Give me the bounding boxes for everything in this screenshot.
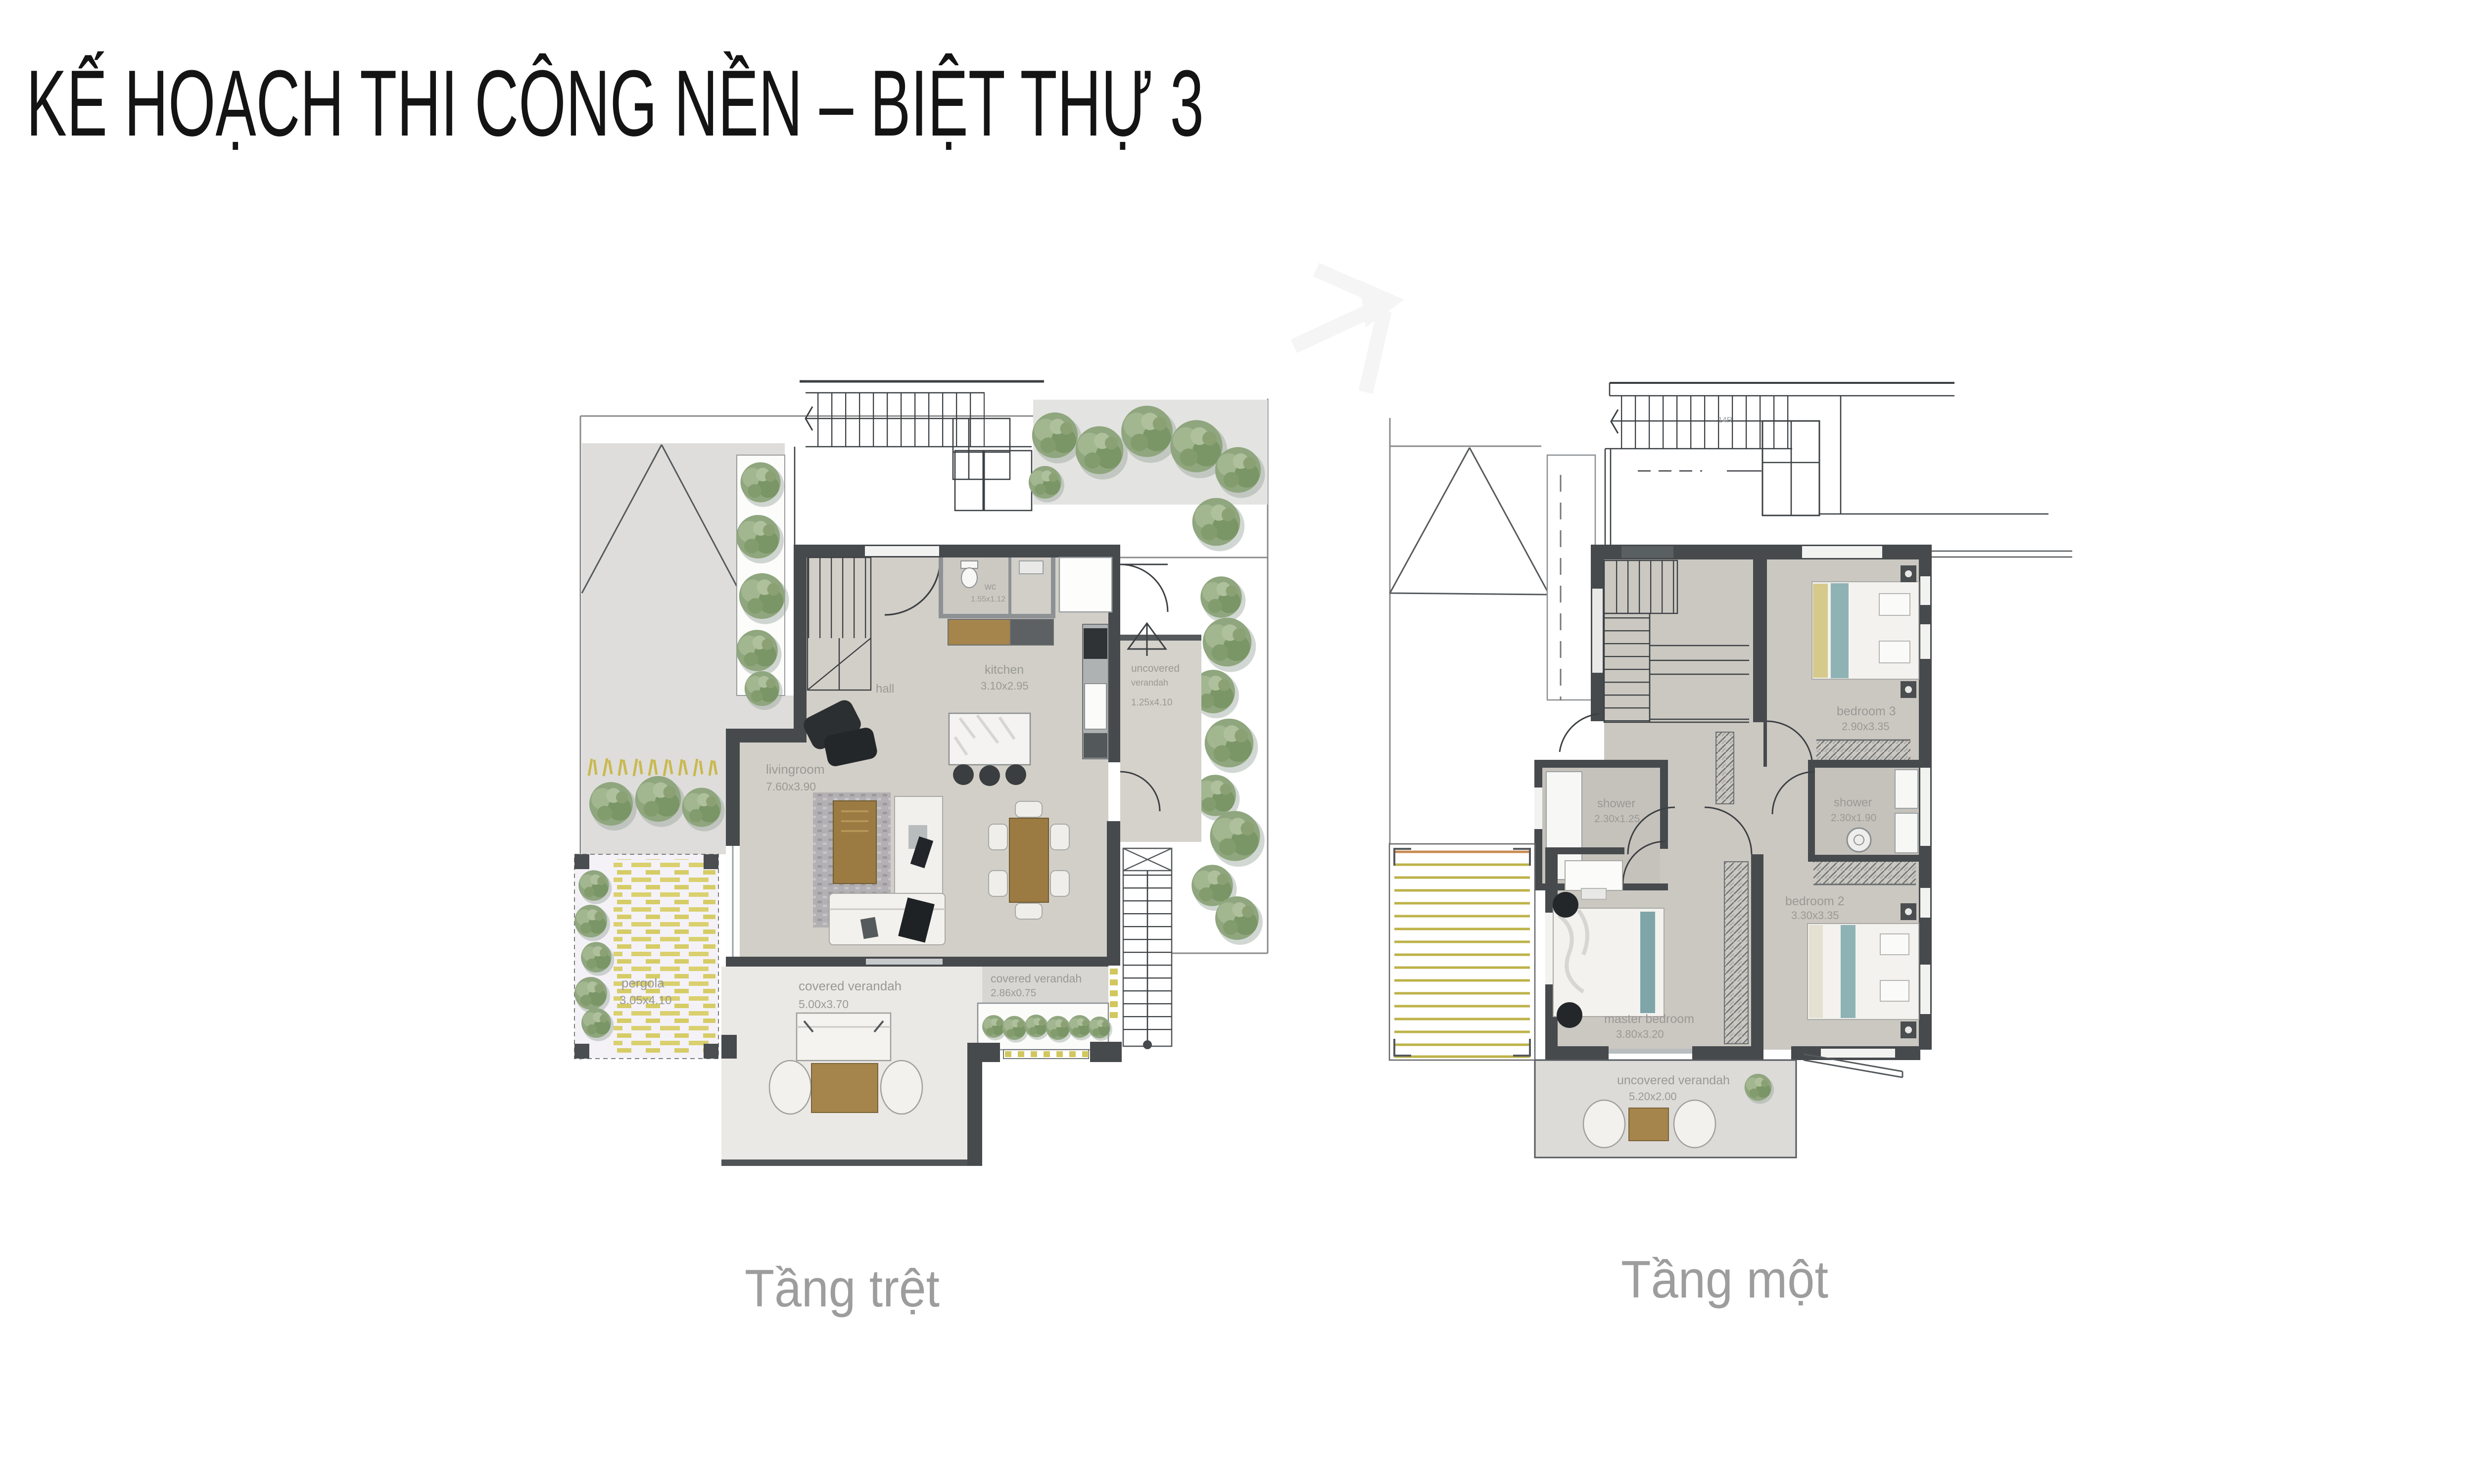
svg-text:livingroom: livingroom [766, 762, 825, 777]
svg-text:shower: shower [1597, 797, 1635, 810]
svg-text:hall: hall [876, 682, 894, 696]
svg-text:3.80x3.20: 3.80x3.20 [1616, 1028, 1664, 1040]
svg-text:pergola: pergola [621, 975, 665, 990]
svg-text:wc: wc [984, 582, 996, 592]
svg-text:2.30x1.25: 2.30x1.25 [1594, 813, 1640, 825]
svg-text:verandah: verandah [1131, 678, 1168, 688]
svg-text:bedroom 2: bedroom 2 [1785, 894, 1845, 908]
svg-text:bedroom 3: bedroom 3 [1837, 704, 1896, 718]
svg-text:2.86x0.75: 2.86x0.75 [991, 987, 1036, 999]
svg-text:shower: shower [1834, 796, 1872, 809]
svg-text:KẾ HOẠCH THI CÔNG NỀN – BIỆT T: KẾ HOẠCH THI CÔNG NỀN – BIỆT THỰ 3 [26, 51, 1204, 156]
svg-text:3.10x2.95: 3.10x2.95 [981, 680, 1029, 692]
svg-text:7.60x3.90: 7.60x3.90 [766, 780, 816, 793]
svg-text:uncovered: uncovered [1131, 663, 1180, 674]
svg-text:3.05x4.10: 3.05x4.10 [619, 994, 671, 1007]
svg-text:5.00x3.70: 5.00x3.70 [799, 998, 849, 1011]
svg-text:Tầng trệt: Tầng trệt [745, 1258, 940, 1318]
svg-text:Tầng một: Tầng một [1621, 1250, 1828, 1309]
svg-text:covered verandah: covered verandah [991, 972, 1082, 985]
svg-text:14R: 14R [1718, 416, 1732, 424]
svg-text:5.20x2.00: 5.20x2.00 [1629, 1090, 1677, 1103]
svg-text:2.90x3.35: 2.90x3.35 [1842, 720, 1890, 733]
svg-text:2.30x1.90: 2.30x1.90 [1831, 812, 1876, 824]
svg-text:kitchen: kitchen [985, 663, 1024, 677]
svg-text:covered verandah: covered verandah [799, 978, 902, 993]
svg-text:1.55x1.12: 1.55x1.12 [971, 595, 1005, 603]
svg-text:uncovered verandah: uncovered verandah [1617, 1073, 1730, 1087]
svg-text:3.30x3.35: 3.30x3.35 [1791, 909, 1839, 922]
svg-text:master bedroom: master bedroom [1604, 1012, 1694, 1026]
svg-text:1.25x4.10: 1.25x4.10 [1131, 697, 1172, 708]
